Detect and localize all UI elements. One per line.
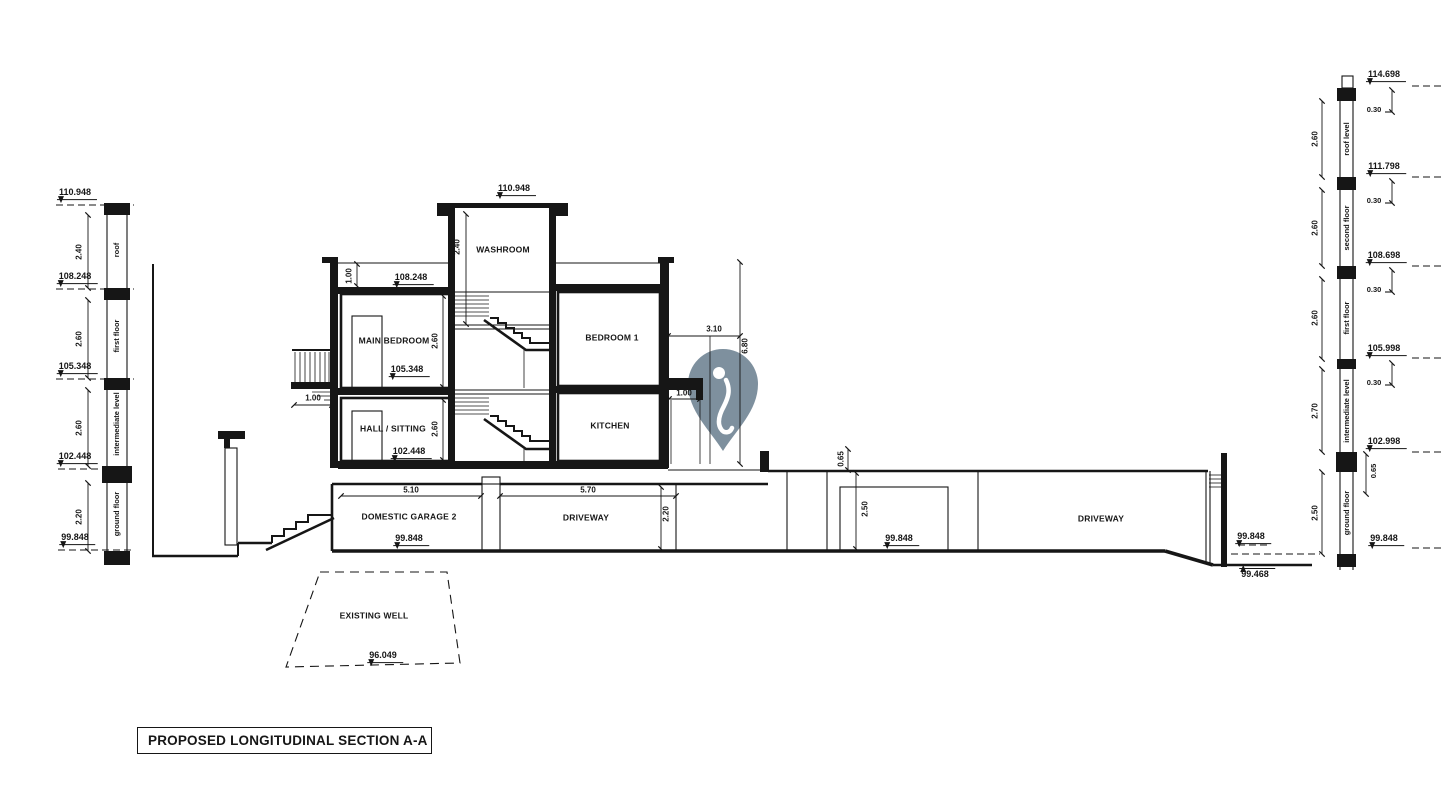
level-right-ground: 99.848 — [1235, 532, 1271, 544]
room-washroom: WASHROOM — [476, 245, 530, 254]
right-dim-0: 2.60 — [1312, 131, 1321, 147]
right-offset-3: 0.30 — [1367, 379, 1382, 387]
level-first: 105.348 — [389, 365, 430, 377]
right-offset-2: 0.30 — [1367, 286, 1382, 294]
dim-door-height: 2.50 — [862, 501, 871, 517]
right-dim-4: 2.50 — [1312, 505, 1321, 521]
level-tower-top: 110.948 — [496, 184, 536, 196]
right-floor-3: intermediate level — [1343, 379, 1351, 442]
left-floor-first: first floor — [113, 320, 121, 353]
level-driveway: 99.848 — [883, 534, 919, 546]
dim-garage-width: 5.10 — [403, 487, 419, 496]
left-site — [152, 264, 334, 556]
level-right-road: 99.468 — [1239, 568, 1275, 580]
room-garage: DOMESTIC GARAGE 2 — [361, 512, 456, 521]
left-dim-ground: 2.20 — [76, 509, 85, 525]
dim-bedroom-height: 2.60 — [432, 333, 441, 349]
left-dim-intermediate: 2.60 — [76, 420, 85, 436]
right-offset-0: 0.30 — [1367, 106, 1382, 114]
right-level-2: 108.698 — [1366, 251, 1407, 263]
right-level-3: 105.998 — [1366, 344, 1407, 356]
room-bedroom1: BEDROOM 1 — [585, 333, 638, 342]
right-level-1: 111.798 — [1366, 162, 1406, 174]
dim-balcony-width: 1.00 — [305, 395, 321, 404]
right-offset-1: 0.30 — [1367, 197, 1382, 205]
pin-glyph-head — [713, 367, 725, 379]
right-floor-2: first floor — [1343, 302, 1351, 335]
left-dim-first: 2.60 — [76, 331, 85, 347]
left-level-roof-top: 110.948 — [57, 188, 97, 200]
right-dim-2: 2.60 — [1312, 310, 1321, 326]
right-floor-0: roof level — [1343, 122, 1351, 155]
right-floor-4: ground floor — [1343, 491, 1351, 536]
dim-hall-height: 2.60 — [432, 421, 441, 437]
right-level-5: 99.848 — [1368, 534, 1404, 546]
right-level-scale — [1322, 76, 1441, 570]
dim-driveway-width: 5.70 — [580, 487, 596, 496]
right-dim-1: 2.60 — [1312, 220, 1321, 236]
left-level-intermediate: 102.448 — [57, 452, 98, 464]
level-well-bottom: 96.049 — [367, 651, 403, 663]
right-dim-3: 2.70 — [1312, 403, 1321, 419]
dim-height-680: 6.80 — [742, 338, 751, 354]
room-existing-well: EXISTING WELL — [340, 611, 409, 620]
left-floor-ground: ground floor — [113, 492, 121, 537]
dim-kerb: 0.65 — [838, 451, 847, 467]
right-level-0: 114.698 — [1366, 70, 1406, 82]
level-roof: 108.248 — [393, 273, 434, 285]
dim-washroom-height: 2.40 — [454, 239, 463, 255]
dim-offset-310: 3.10 — [706, 326, 722, 335]
level-intermediate: 102.448 — [391, 447, 432, 459]
left-floor-roof: roof — [113, 243, 121, 258]
left-level-scale — [56, 203, 134, 565]
drawing-sheet: 110.948 108.248 105.348 102.448 99.848 2… — [0, 0, 1444, 800]
left-floor-intermediate: intermediate level — [113, 392, 121, 455]
room-driveway-left: DRIVEWAY — [563, 513, 609, 522]
room-driveway-right: DRIVEWAY — [1078, 514, 1124, 523]
section-drawing-linework — [0, 0, 1444, 800]
right-floor-1: second floor — [1343, 205, 1351, 250]
room-hall-sitting: HALL / SITTING — [360, 424, 426, 433]
left-level-ground: 99.848 — [59, 533, 95, 545]
right-level-4: 102.998 — [1366, 437, 1407, 449]
drawing-title: PROPOSED LONGITUDINAL SECTION A-A — [148, 733, 428, 748]
dim-driveway-height: 2.20 — [663, 506, 672, 522]
left-level-roof: 108.248 — [57, 272, 98, 284]
left-dim-roof: 2.40 — [76, 244, 85, 260]
level-garage: 99.848 — [393, 534, 429, 546]
drawing-title-box: PROPOSED LONGITUDINAL SECTION A-A — [137, 727, 432, 754]
right-offset-4: 0.65 — [1370, 464, 1378, 479]
room-kitchen: KITCHEN — [590, 421, 629, 430]
dim-kitchen-stub: 1.00 — [676, 390, 692, 399]
dim-parapet: 1.00 — [346, 268, 355, 284]
left-level-first: 105.348 — [57, 362, 98, 374]
room-main-bedroom: MAIN BEDROOM — [359, 336, 430, 345]
